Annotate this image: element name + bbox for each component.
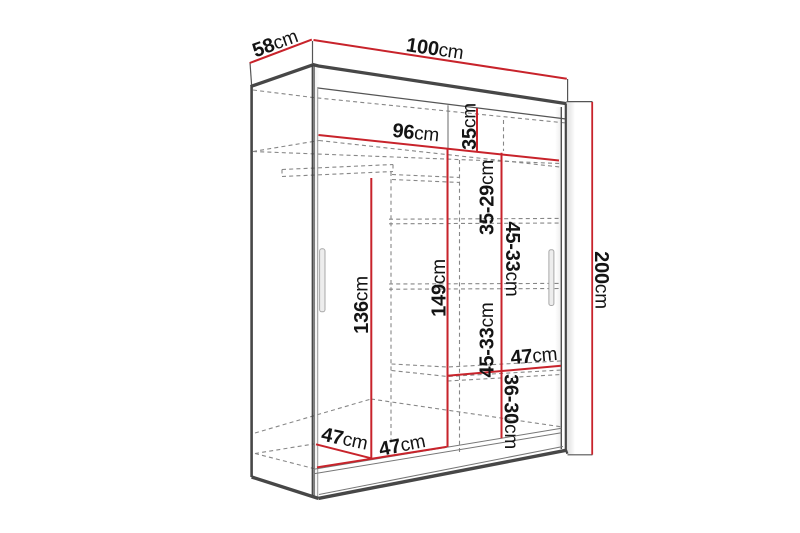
svg-text:200cm: 200cm [590, 251, 612, 309]
svg-text:149cm: 149cm [428, 259, 450, 317]
svg-text:45-33cm: 45-33cm [476, 302, 498, 377]
svg-text:136cm: 136cm [351, 276, 373, 334]
svg-text:47cm: 47cm [510, 343, 559, 369]
svg-text:36-30cm: 36-30cm [500, 374, 522, 449]
svg-text:35-29cm: 35-29cm [476, 160, 498, 235]
svg-text:35cm: 35cm [459, 103, 481, 150]
svg-text:45-33cm: 45-33cm [501, 221, 523, 296]
